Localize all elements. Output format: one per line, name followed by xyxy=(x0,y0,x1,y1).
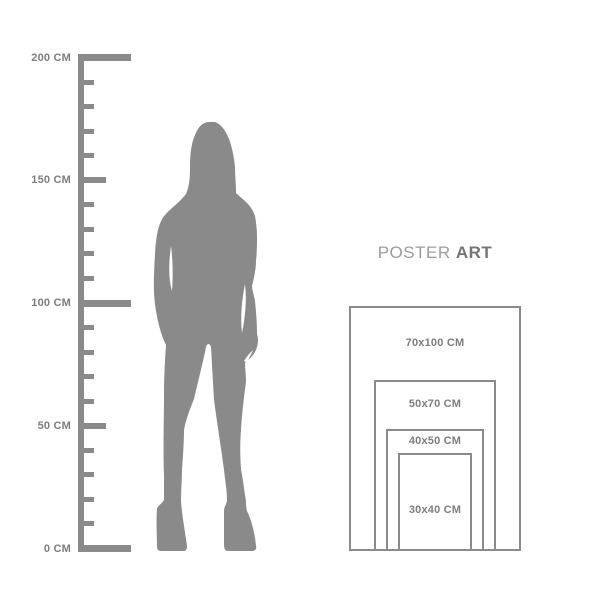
ruler-tick-140 xyxy=(84,202,94,207)
poster-size-label-70x100: 70x100 CM xyxy=(375,336,495,350)
brand-title: POSTER ART xyxy=(335,243,535,263)
ruler-tick-180 xyxy=(84,104,94,109)
poster-size-stack: 70x100 CM50x70 CM40x50 CM30x40 CM xyxy=(330,290,600,570)
ruler-tick-200 xyxy=(78,54,131,61)
ruler-tick-130 xyxy=(84,227,94,232)
brand-title-bold: ART xyxy=(456,243,492,262)
height-ruler: 200 CM150 CM100 CM50 CM0 CM xyxy=(0,0,140,600)
ruler-tick-80 xyxy=(84,350,94,355)
ruler-tick-110 xyxy=(84,276,94,281)
woman-silhouette xyxy=(152,120,262,552)
poster-size-label-30x40: 30x40 CM xyxy=(375,503,495,517)
brand-title-normal: POSTER xyxy=(378,243,451,262)
poster-size-label-40x50: 40x50 CM xyxy=(375,434,495,448)
ruler-tick-170 xyxy=(84,129,94,134)
ruler-tick-120 xyxy=(84,251,94,256)
size-guide-canvas: 200 CM150 CM100 CM50 CM0 CM POSTER ART 7… xyxy=(0,0,600,600)
ruler-label-150: 150 CM xyxy=(0,173,71,187)
ruler-tick-150 xyxy=(78,177,106,183)
ruler-label-200: 200 CM xyxy=(0,51,71,65)
ruler-tick-160 xyxy=(84,153,94,158)
ruler-label-50: 50 CM xyxy=(0,419,71,433)
ruler-tick-50 xyxy=(78,423,106,429)
ruler-tick-20 xyxy=(84,497,94,502)
woman-silhouette-body xyxy=(154,122,258,551)
ruler-tick-0 xyxy=(78,545,131,552)
ruler-label-100: 100 CM xyxy=(0,296,71,310)
ruler-tick-190 xyxy=(84,80,94,85)
ruler-tick-90 xyxy=(84,325,94,330)
ruler-tick-30 xyxy=(84,472,94,477)
poster-size-label-50x70: 50x70 CM xyxy=(375,397,495,411)
ruler-tick-60 xyxy=(84,399,94,404)
ruler-label-0: 0 CM xyxy=(0,542,71,556)
ruler-tick-70 xyxy=(84,374,94,379)
ruler-tick-40 xyxy=(84,448,94,453)
ruler-tick-10 xyxy=(84,521,94,526)
ruler-tick-100 xyxy=(78,300,131,307)
